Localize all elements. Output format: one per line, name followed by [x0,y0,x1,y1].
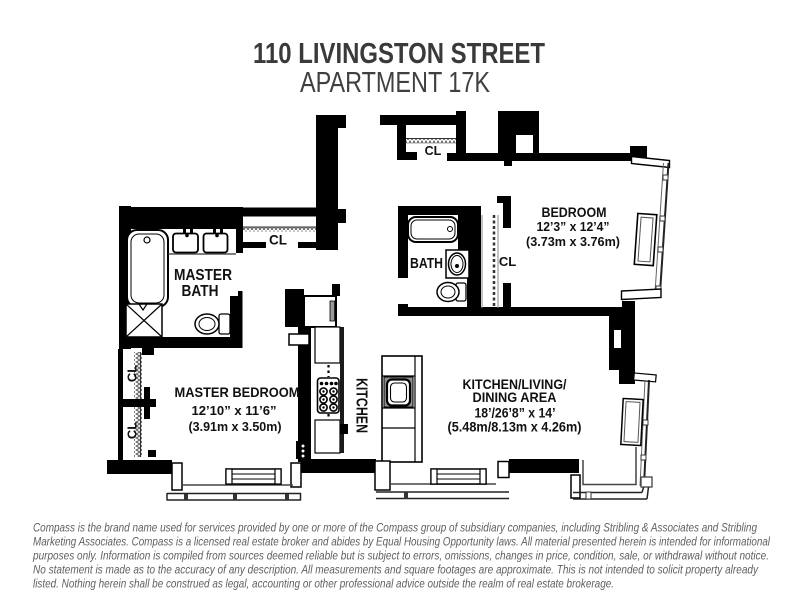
svg-text:(3.73m x 3.76m): (3.73m x 3.76m) [526,234,620,249]
svg-text:CL: CL [425,144,442,158]
svg-text:CL: CL [125,422,140,439]
svg-text:12’3” x 12’4”: 12’3” x 12’4” [537,219,610,234]
svg-text:(3.91m x 3.50m): (3.91m x 3.50m) [189,419,282,434]
svg-text:BEDROOM: BEDROOM [542,205,607,220]
svg-text:BATH: BATH [182,283,219,300]
svg-text:DINING AREA: DINING AREA [473,389,557,405]
svg-text:(5.48m/8.13m x 4.26m): (5.48m/8.13m x 4.26m) [448,420,582,435]
svg-text:CL: CL [125,365,140,382]
svg-text:18’/26’8” x 14’: 18’/26’8” x 14’ [475,406,556,421]
svg-text:MASTER: MASTER [174,267,232,284]
svg-text:APARTMENT 17K: APARTMENT 17K [300,67,491,99]
svg-text:110 LIVINGSTON STREET: 110 LIVINGSTON STREET [253,38,545,70]
svg-text:listed. Nothing herein shall b: listed. Nothing herein shall be construe… [33,577,614,591]
svg-text:CL: CL [499,254,516,269]
svg-text:Marketing Associates. Compass: Marketing Associates. Compass is a licen… [33,535,770,549]
svg-text:MASTER BEDROOM: MASTER BEDROOM [175,384,300,400]
svg-text:No statement is made as to the: No statement is made as to the accuracy … [33,563,759,577]
svg-text:12’10” x 11’6”: 12’10” x 11’6” [192,403,277,418]
svg-text:KITCHEN: KITCHEN [353,378,370,433]
svg-text:CL: CL [269,233,287,248]
svg-text:purposes only. Information is: purposes only. Information is compiled f… [32,549,769,563]
svg-text:BATH: BATH [410,255,443,272]
svg-text:Compass is the brand name used: Compass is the brand name used for servi… [33,521,757,535]
